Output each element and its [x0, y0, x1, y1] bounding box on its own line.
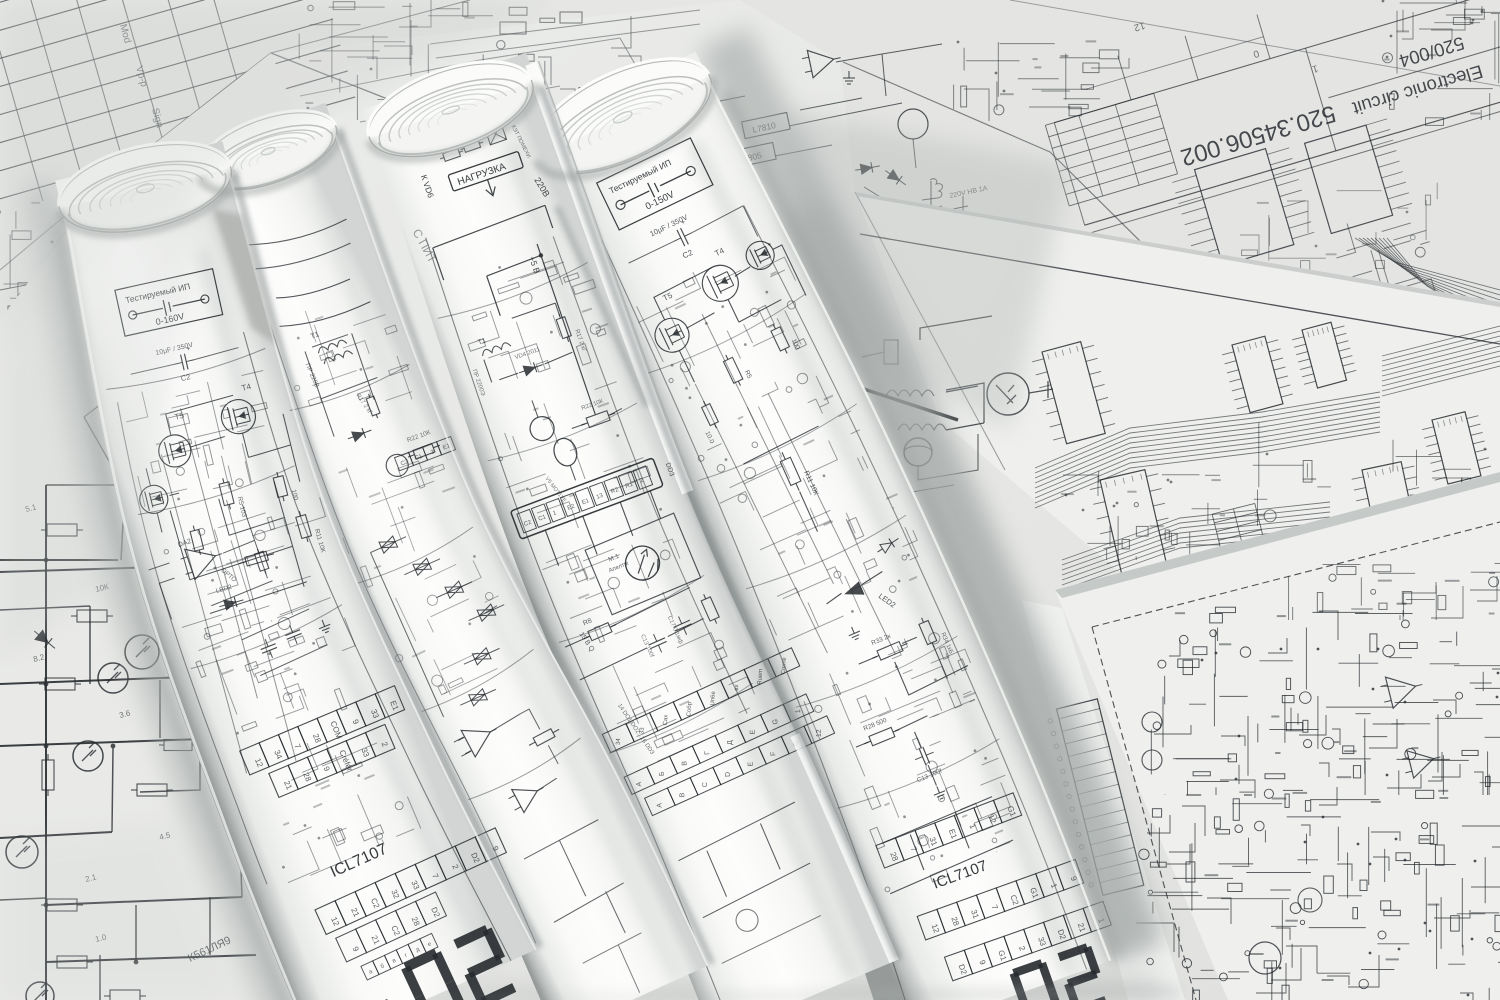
svg-text:Б: Б: [659, 771, 666, 776]
svg-text:G: G: [772, 719, 779, 725]
svg-text:34: 34: [616, 737, 622, 745]
svg-text:B: B: [679, 792, 686, 797]
svg-text:Г: Г: [704, 751, 711, 755]
svg-text:E: E: [747, 761, 754, 766]
svg-text:Un6е: Un6е: [710, 690, 717, 705]
svg-text:1: 1: [795, 709, 802, 713]
svg-text:В: В: [681, 761, 688, 766]
svg-text:12: 12: [816, 729, 823, 737]
svg-text:F: F: [770, 751, 777, 756]
svg-text:A: A: [656, 803, 663, 808]
svg-text:Е: Е: [750, 729, 757, 734]
svg-text:C: C: [702, 782, 709, 787]
svg-text:Ruem: Ruem: [757, 669, 764, 685]
svg-text:Д: Д: [727, 740, 734, 745]
svg-text:вх: вх: [734, 684, 740, 691]
svg-text:А: А: [636, 781, 643, 786]
svg-text:D: D: [725, 772, 732, 777]
svg-text:Сонте: Сонте: [781, 657, 788, 675]
svg-text:Собр: Собр: [686, 701, 693, 716]
